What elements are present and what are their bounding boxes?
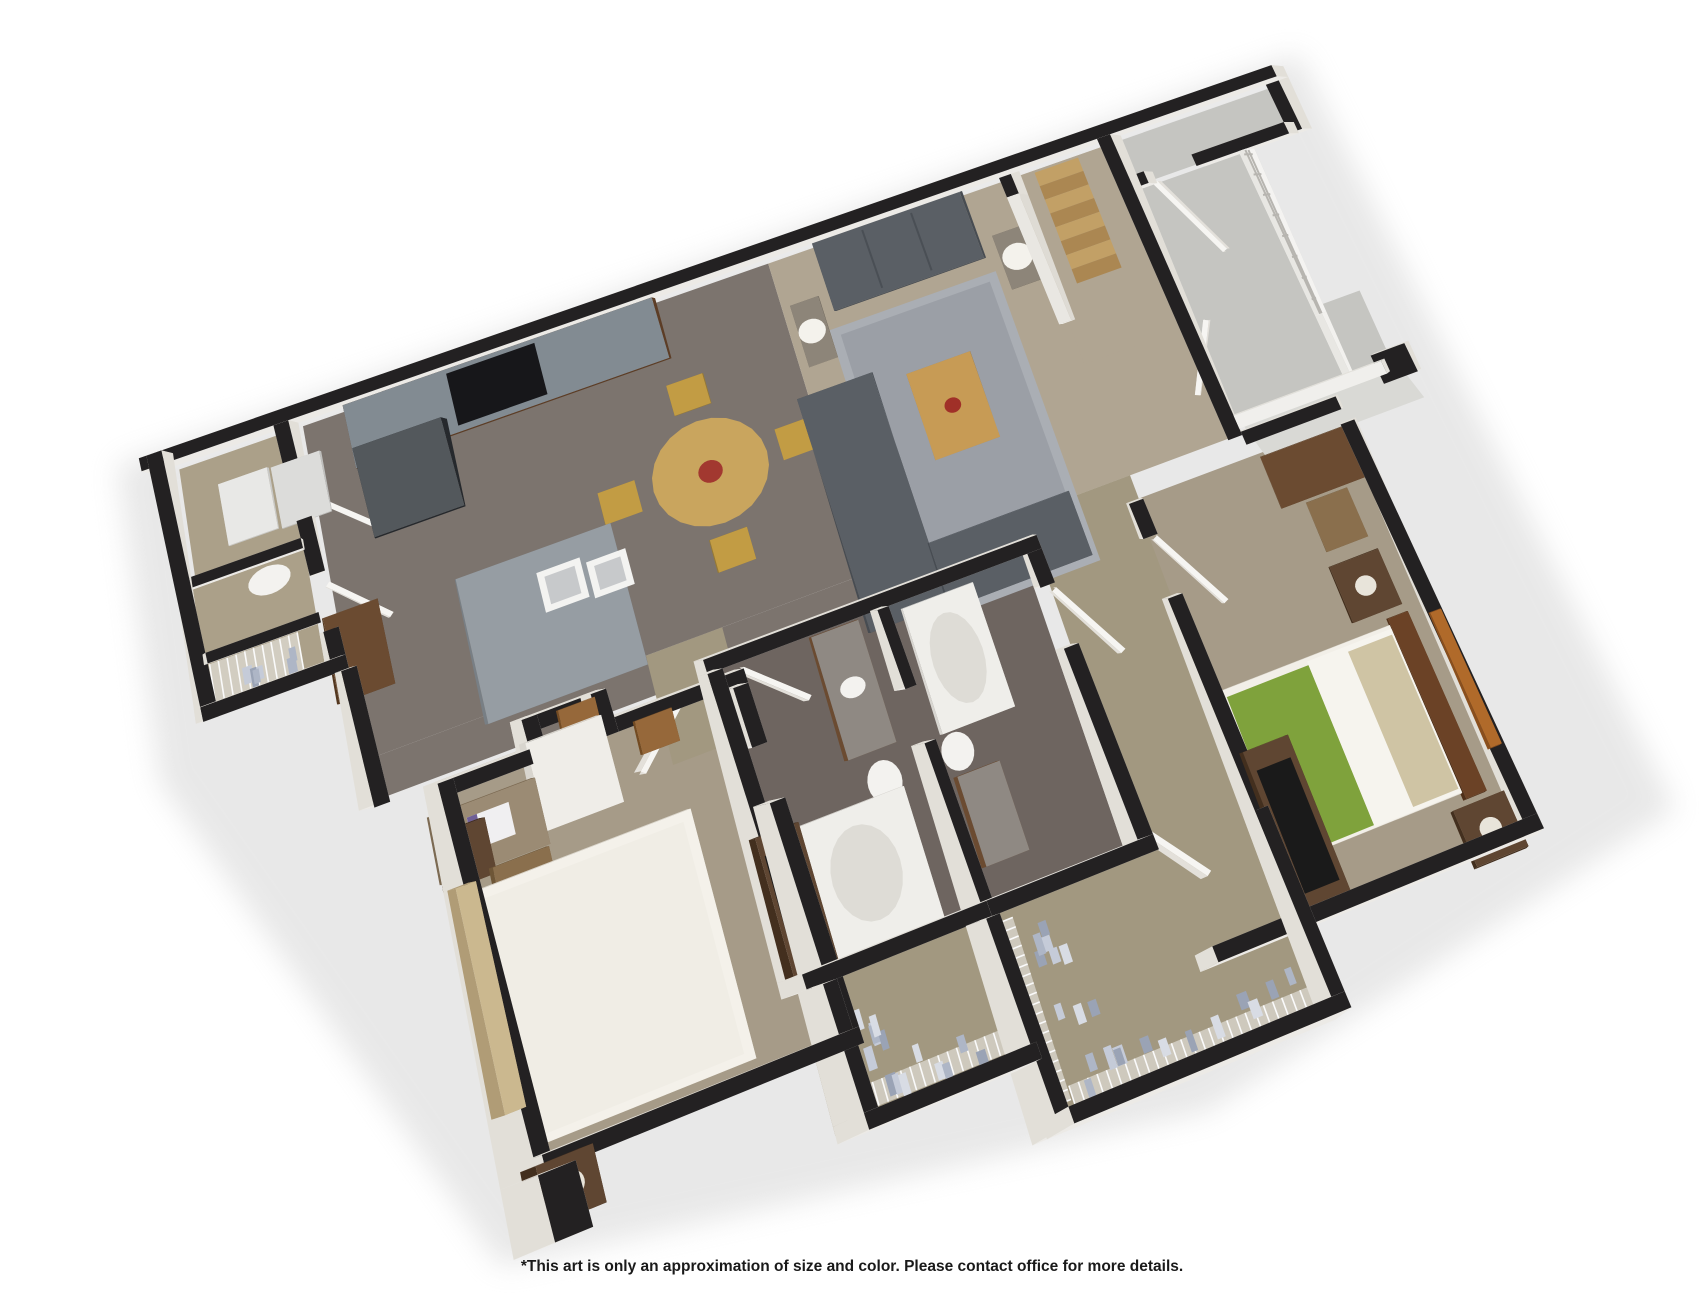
- svg-text:*This art is only an approxima: *This art is only an approximation of si…: [521, 1258, 1183, 1275]
